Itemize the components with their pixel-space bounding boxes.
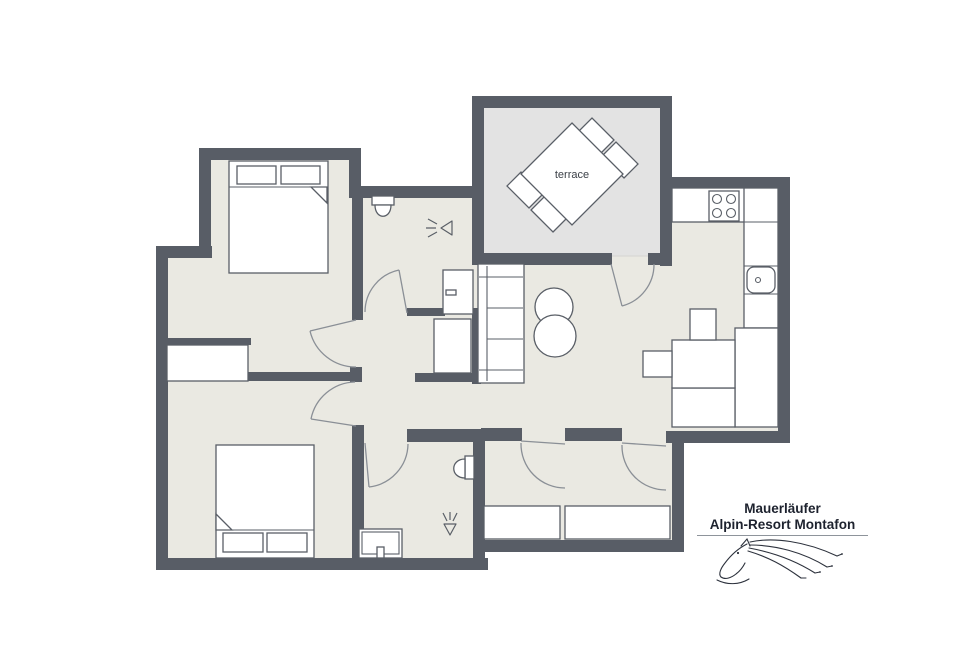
hall-closet — [565, 506, 670, 539]
wall-hall-top-a — [481, 428, 522, 441]
wall-corridor — [248, 372, 354, 381]
pillow — [267, 533, 307, 552]
wall-bedroom1-closet — [163, 338, 251, 345]
cabinet-handle — [446, 290, 456, 295]
wall-terrace-top — [472, 96, 672, 108]
wall-bedroom1-bathroom1-divider — [352, 194, 363, 320]
wall-hall-right — [672, 431, 684, 552]
wall-bedroom1-top — [199, 148, 361, 160]
coffee-table — [534, 315, 576, 357]
wall-bathroom1-top — [349, 186, 479, 198]
pillow — [237, 166, 276, 184]
wall-kitchen-bottom — [666, 431, 790, 443]
wall-terrace-bottom-stub — [648, 253, 672, 265]
wall-hall-top-b — [565, 428, 622, 441]
wardrobe-bedroom2 — [167, 345, 248, 381]
kitchen-chair — [690, 309, 716, 340]
wall-bathroom2-top — [407, 429, 483, 442]
horse-logo — [713, 537, 853, 587]
floor-plan-page: terrace Mauerläufer Alpin-Resort Montafo… — [0, 0, 960, 665]
pillow — [223, 533, 263, 552]
kitchen-counter-bottom — [672, 388, 735, 427]
pillow — [281, 166, 320, 184]
wall-kitchen-right — [778, 177, 790, 443]
wall-outer-bottom-left — [156, 558, 488, 570]
toilet-tank — [465, 456, 474, 479]
wall-bathroom2-right — [473, 429, 485, 570]
kitchen-table — [672, 340, 735, 388]
wall-corridor-post — [350, 367, 362, 382]
brand-subtitle: Alpin-Resort Montafon — [695, 517, 870, 533]
sofa — [478, 264, 524, 383]
niche-wardrobe — [434, 319, 471, 373]
brand-title: Mauerläufer — [695, 501, 870, 517]
kitchen-chair — [643, 351, 672, 377]
vanity-faucet — [377, 547, 384, 558]
wall-terrace-left — [472, 96, 484, 264]
hall-closet — [484, 506, 560, 539]
kitchen-counter-right — [744, 188, 778, 328]
terrace-label: terrace — [555, 169, 589, 181]
wall-outer-left — [156, 246, 168, 570]
brand-block: Mauerläufer Alpin-Resort Montafon — [695, 501, 870, 587]
brand-divider — [697, 535, 868, 536]
kitchen-counter-wide — [735, 328, 778, 427]
toilet-tank — [372, 196, 394, 205]
wall-terrace-bottom — [472, 253, 612, 265]
wall-kitchen-top — [660, 177, 790, 189]
wall-bedroom1-left — [199, 148, 211, 258]
wall-bathroom1-south — [407, 308, 445, 316]
wall-niche-bottom — [415, 373, 475, 382]
wall-hall-bottom — [473, 540, 684, 552]
